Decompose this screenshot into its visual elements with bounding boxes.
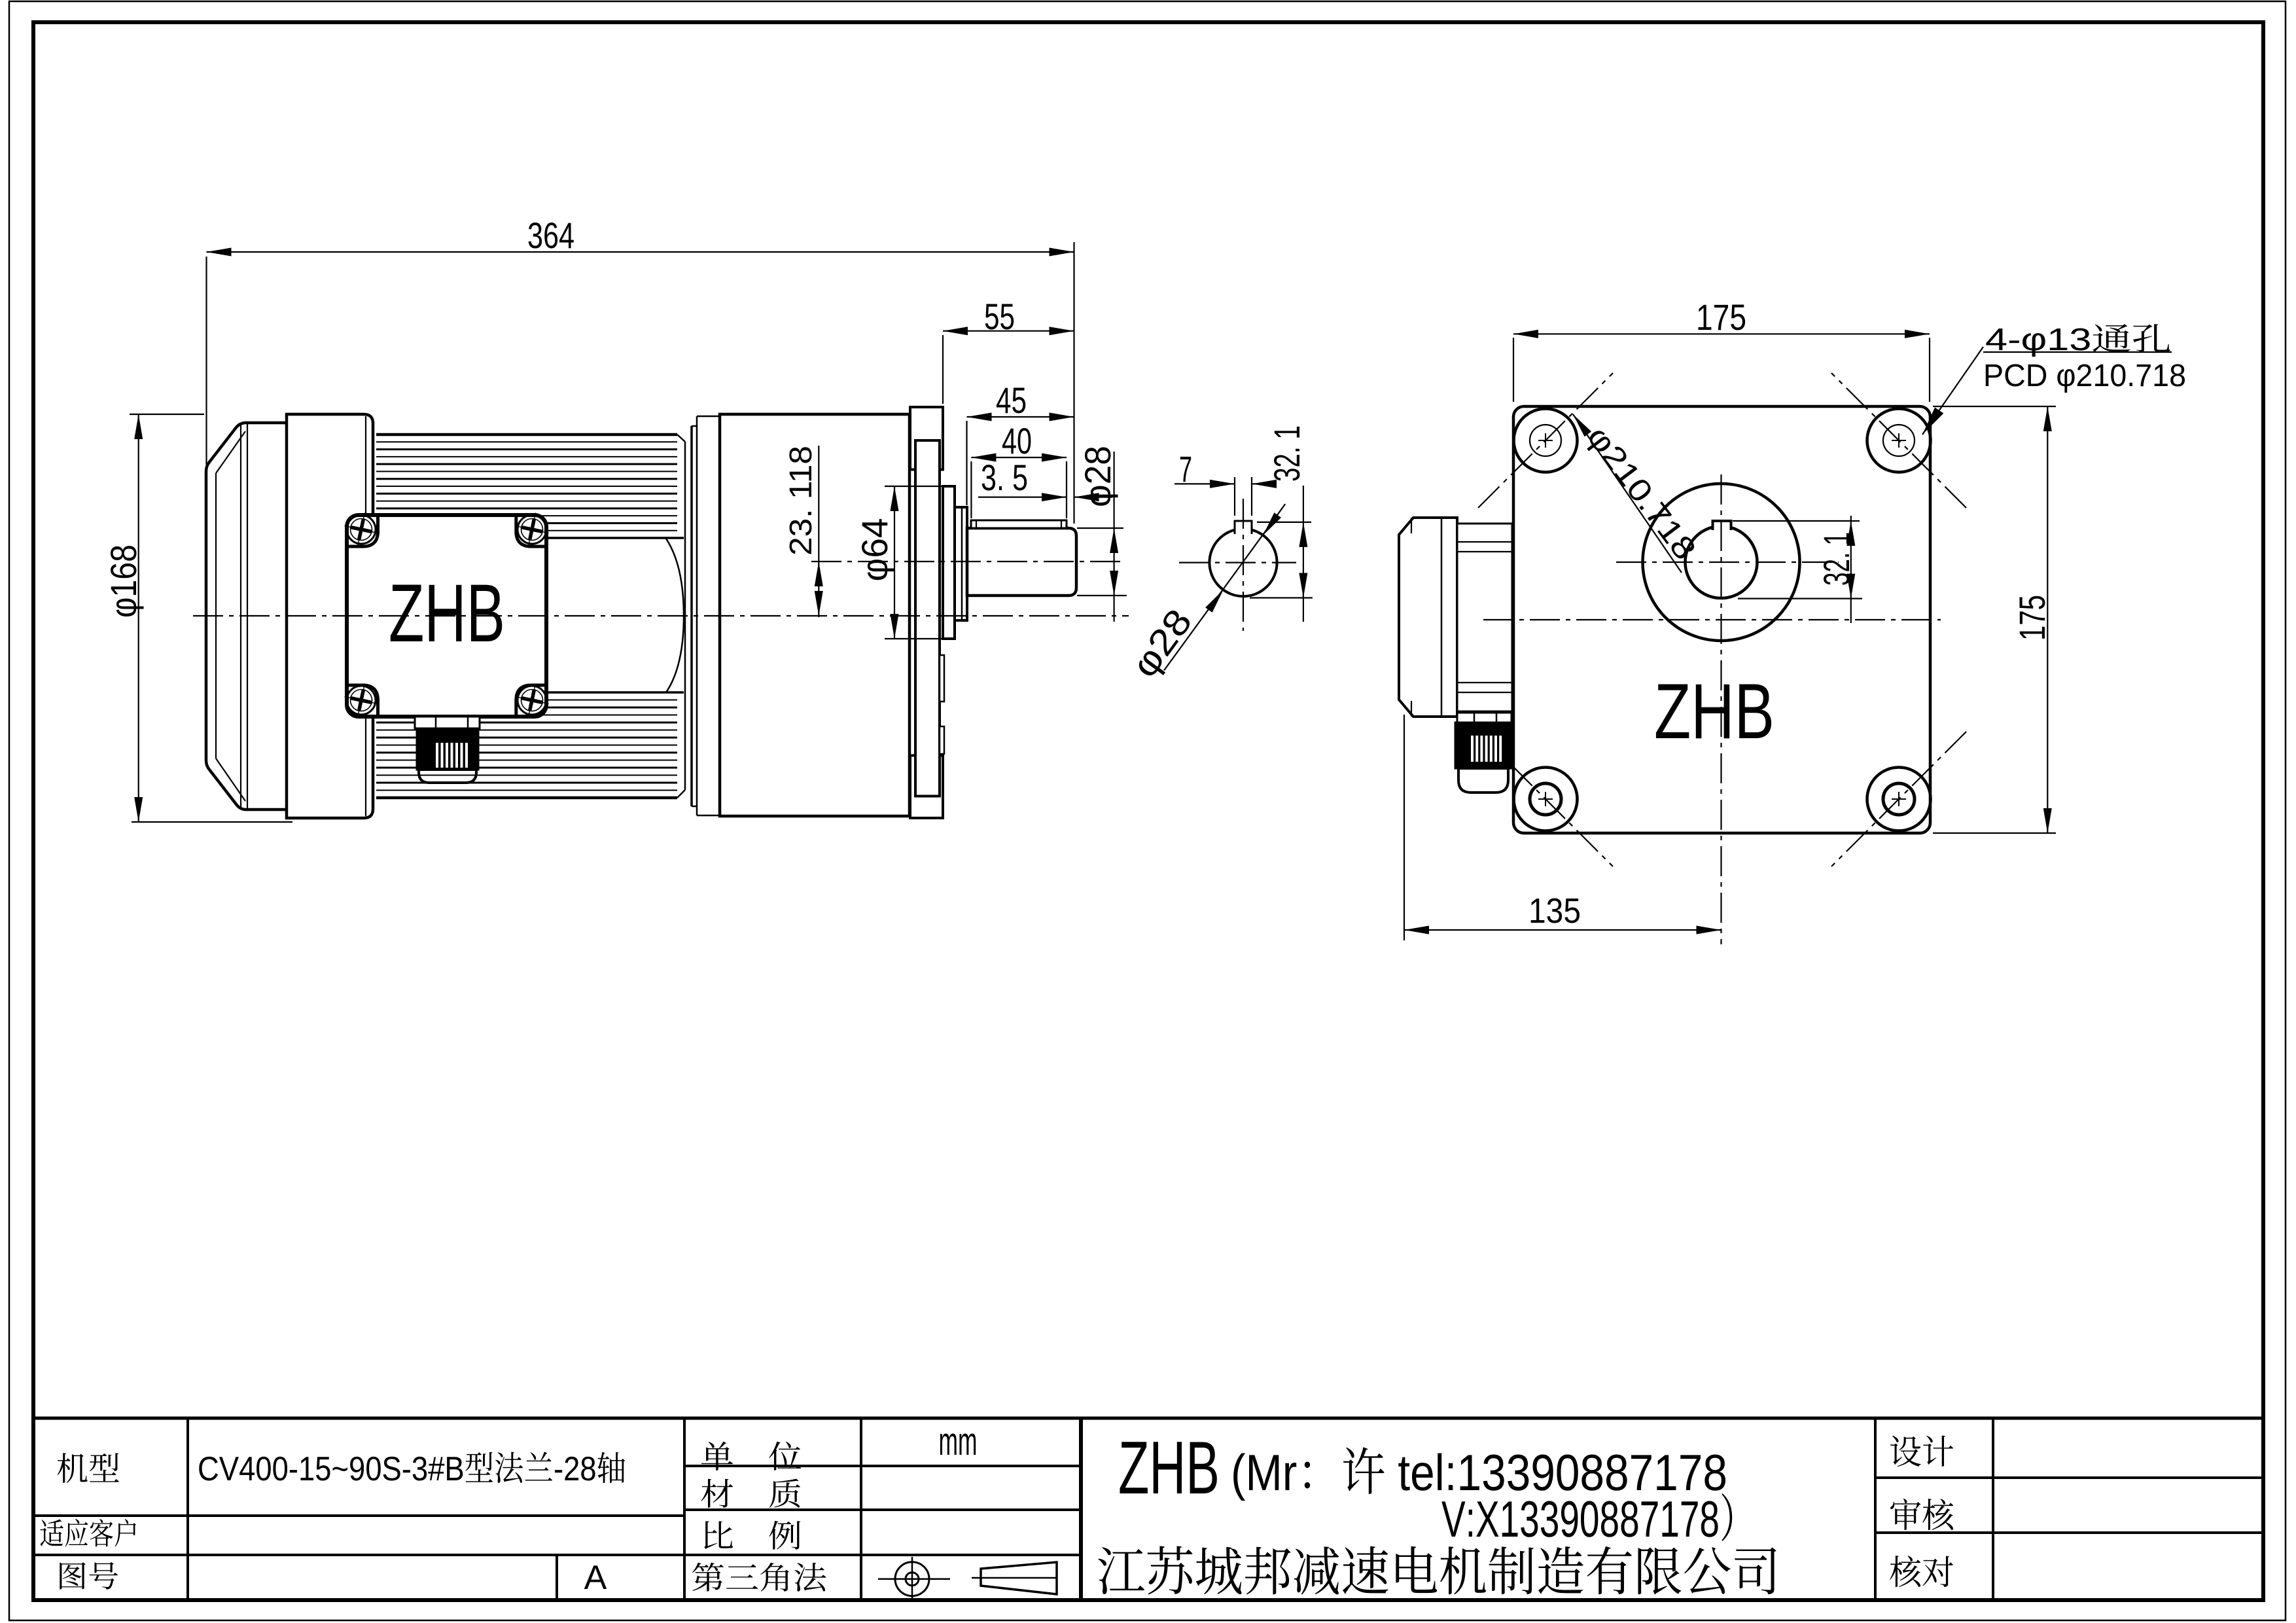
svg-text:PCD φ210.718: PCD φ210.718 (1983, 359, 2186, 393)
svg-text:135: 135 (1528, 891, 1581, 931)
svg-text:3. 5: 3. 5 (981, 457, 1028, 498)
svg-text:175: 175 (1696, 296, 1746, 338)
svg-text:mm: mm (939, 1419, 978, 1463)
svg-text:364: 364 (527, 215, 574, 256)
svg-text:55: 55 (984, 296, 1015, 337)
svg-text:32. 1: 32. 1 (1816, 532, 1857, 586)
svg-text:ZHB: ZHB (389, 568, 505, 659)
svg-text:45: 45 (996, 380, 1027, 421)
svg-text:φ64: φ64 (854, 518, 895, 582)
svg-text:7: 7 (1179, 448, 1192, 490)
svg-text:175: 175 (2011, 595, 2053, 641)
svg-text:ZHB: ZHB (1118, 1427, 1220, 1510)
svg-text:40: 40 (1002, 420, 1032, 461)
svg-text:φ168: φ168 (103, 544, 144, 618)
svg-text:φ28: φ28 (1077, 446, 1118, 507)
svg-text:A: A (584, 1559, 607, 1597)
svg-text:32. 1: 32. 1 (1266, 425, 1307, 482)
svg-text:23. 118: 23. 118 (784, 446, 819, 556)
svg-text:ZHB: ZHB (1654, 668, 1775, 755)
